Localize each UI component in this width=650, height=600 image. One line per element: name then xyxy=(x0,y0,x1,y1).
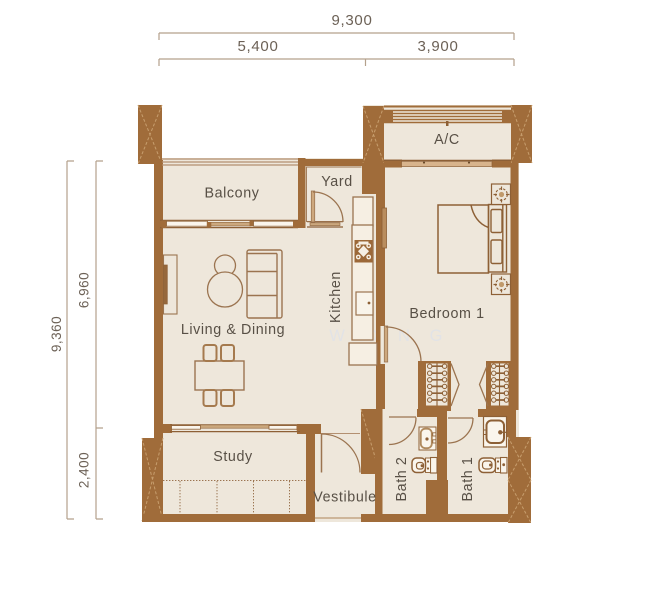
svg-text:Yard: Yard xyxy=(321,174,353,190)
svg-text:Balcony: Balcony xyxy=(204,186,259,202)
svg-text:W: W xyxy=(329,327,345,345)
svg-text:6,960: 6,960 xyxy=(77,272,92,308)
svg-text:Vestibule: Vestibule xyxy=(313,490,376,506)
svg-text:Living & Dining: Living & Dining xyxy=(181,322,285,338)
svg-text:Study: Study xyxy=(213,449,253,465)
svg-text:Bath 1: Bath 1 xyxy=(460,457,476,502)
svg-text:Kitchen: Kitchen xyxy=(328,271,344,323)
svg-text:A/C: A/C xyxy=(434,132,460,148)
svg-text:9,300: 9,300 xyxy=(331,12,372,29)
svg-text:G: G xyxy=(430,327,443,345)
svg-text:Bath 2: Bath 2 xyxy=(394,457,410,502)
svg-text:5,400: 5,400 xyxy=(237,38,278,55)
svg-text:2,400: 2,400 xyxy=(77,452,92,488)
svg-text:3,900: 3,900 xyxy=(417,38,458,55)
svg-text:Bedroom 1: Bedroom 1 xyxy=(409,306,484,322)
svg-text:9,360: 9,360 xyxy=(49,316,64,352)
